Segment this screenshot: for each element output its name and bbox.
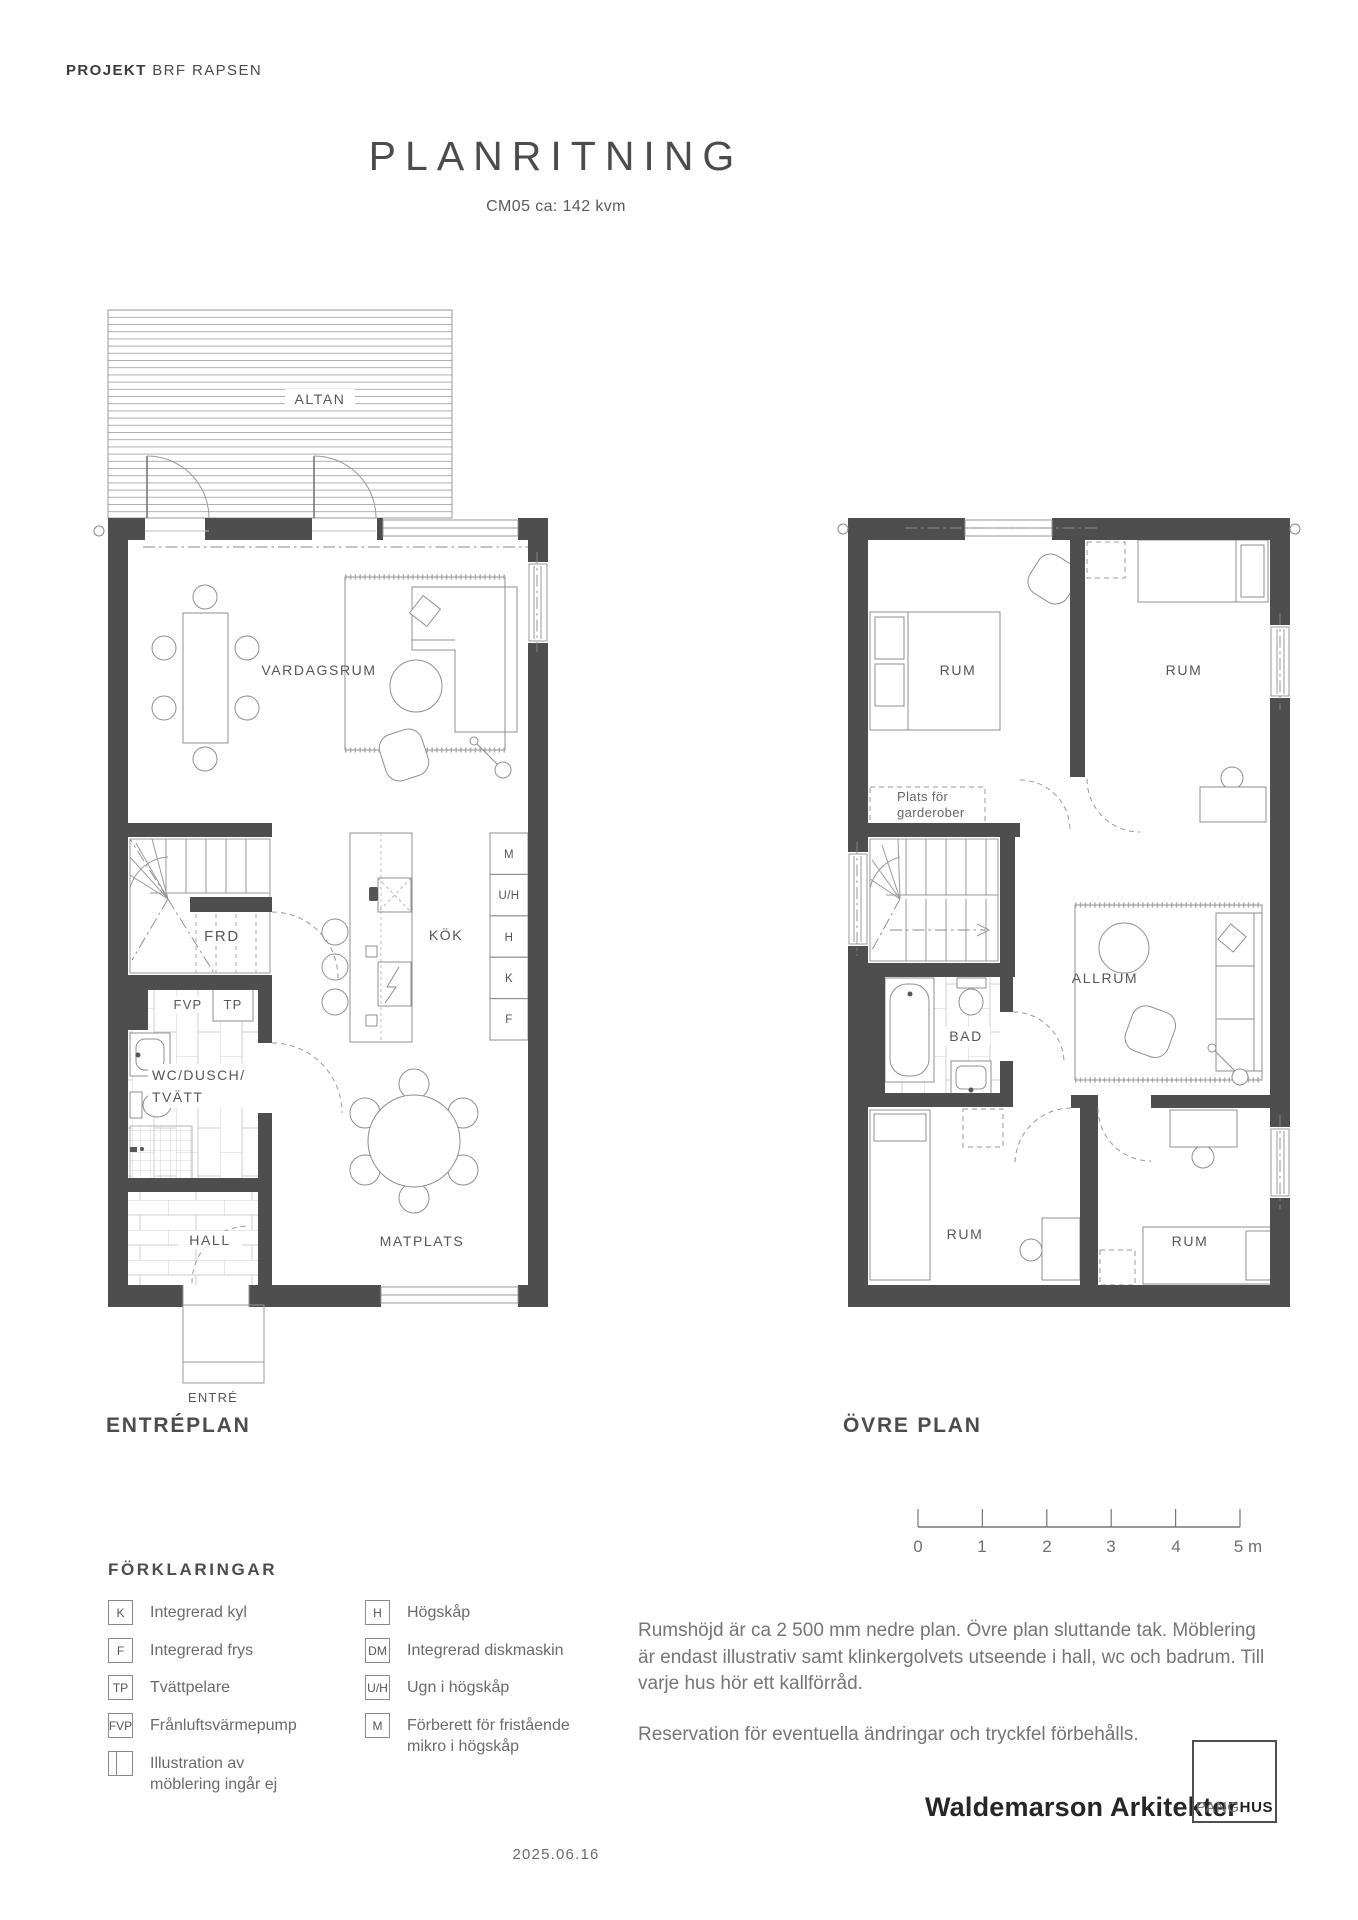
page-subtitle: CM05 ca: 142 kvm	[486, 198, 626, 216]
page-title: PLANRITNING	[369, 133, 744, 180]
legend-key-box: H	[365, 1600, 390, 1625]
cabinet-label-uh: U/H	[498, 890, 519, 902]
legend-key-box: TP	[108, 1675, 133, 1700]
staircase-upper	[870, 839, 998, 961]
entreplan-drawing: ALTAN VARDAGSRUM FRD FVP TP WC/DUSCH/ TV…	[60, 280, 580, 1420]
room-label-entre: ENTRÉ	[188, 1390, 238, 1405]
legend-label: Högskåp	[407, 1600, 470, 1623]
legend-key-box: F	[108, 1638, 133, 1663]
armchair	[376, 725, 433, 784]
bar-stools	[322, 919, 348, 1015]
label-plats-line1: Plats för	[897, 789, 949, 804]
legend-key-box: DM	[365, 1638, 390, 1663]
cabinet-label-k: K	[505, 973, 513, 985]
corner-marker-right	[1290, 524, 1300, 534]
floorplan-document: PROJEKT BRF RAPSEN PLANRITNING CM05 ca: …	[0, 0, 1358, 1920]
room-label-vardagsrum: VARDAGSRUM	[261, 662, 376, 678]
legend-label: Integrerad diskmaskin	[407, 1638, 564, 1661]
faucet-icon	[369, 887, 378, 901]
cabinet-label-m: M	[504, 849, 514, 861]
document-date: 2025.06.16	[512, 1846, 599, 1863]
legend-item-illustration: Illustration av möblering ingår ej	[108, 1751, 315, 1795]
bed-room-bottomleft	[870, 1110, 930, 1280]
room-label-tp: TP	[223, 997, 242, 1012]
desk-room-topright	[1200, 767, 1266, 822]
room-label-wc-line1: WC/DUSCH/	[152, 1067, 245, 1083]
legend-key-box: U/H	[365, 1675, 390, 1700]
scale-label-3: 3	[1106, 1537, 1115, 1556]
room-label-rum-topright: RUM	[1166, 662, 1203, 678]
project-header: PROJEKT BRF RAPSEN	[66, 62, 262, 79]
legend-key-box: K	[108, 1600, 133, 1625]
legend-item-frys: F Integrerad frys	[108, 1638, 253, 1663]
plan-title-entreplan: ENTRÉPLAN	[106, 1414, 251, 1438]
legend-item-diskmaskin: DM Integrerad diskmaskin	[365, 1638, 564, 1663]
legend-label: Integrerad kyl	[150, 1600, 247, 1623]
legend-item-kyl: K Integrerad kyl	[108, 1600, 247, 1625]
room-label-bad: BAD	[949, 1028, 983, 1044]
legend-item-mikro: M Förberett för fristående mikro i högsk…	[365, 1713, 607, 1757]
ovreplan-drawing: RUM RUM Plats för garderober ALLRUM BAD …	[820, 480, 1320, 1340]
entry-porch	[183, 1305, 264, 1383]
legend-label: Tvättpelare	[150, 1675, 230, 1698]
cabinet-label-h: H	[505, 932, 514, 944]
corner-marker-left	[838, 524, 848, 534]
room-label-kok: KÖK	[429, 926, 463, 943]
shower-area	[130, 1126, 192, 1180]
altan-deck	[108, 310, 452, 518]
project-name: BRF RAPSEN	[152, 62, 262, 79]
project-label: PROJEKT	[66, 62, 147, 79]
scale-label-0: 0	[913, 1537, 922, 1556]
bathtub	[885, 978, 934, 1082]
legend-label: Illustration av möblering ingår ej	[150, 1751, 315, 1795]
legend-item-franluft: FVP Frånluftsvärmepump	[108, 1713, 297, 1738]
sink-upper	[951, 1061, 991, 1095]
room-label-rum-bottomleft: RUM	[947, 1226, 984, 1242]
legend-key-box-illustration	[108, 1751, 133, 1776]
plan-title-ovreplan: ÖVRE PLAN	[843, 1414, 982, 1438]
room-label-matplats: MATPLATS	[380, 1233, 465, 1249]
legend-item-tvattpelare: TP Tvättpelare	[108, 1675, 230, 1700]
scale-bar: 0 1 2 3 4 5 m	[900, 1495, 1280, 1565]
dining-table-vardagsrum	[152, 585, 259, 771]
room-label-frd: FRD	[204, 928, 240, 945]
bed-room-topright	[1138, 540, 1268, 602]
legend-heading: FÖRKLARINGAR	[108, 1560, 277, 1580]
note-reservation: Reservation för eventuella ändringar och…	[638, 1722, 1268, 1749]
kitchen-island	[350, 833, 412, 1042]
legend-label: Frånluftsvärmepump	[150, 1713, 297, 1736]
allrum-armchair	[1121, 1002, 1179, 1062]
legend-key-box: M	[365, 1713, 390, 1738]
matplats-table	[350, 1069, 478, 1213]
label-plats-line2: garderober	[897, 805, 965, 820]
room-label-hall: HALL	[189, 1232, 230, 1248]
room-label-altan: ALTAN	[294, 391, 345, 407]
logo-text-pang: PANG	[1196, 1799, 1240, 1816]
bed-room-topleft	[870, 612, 1000, 730]
legend-label: Förberett för fristående mikro i högskåp	[407, 1713, 607, 1757]
desk-room-bottomleft	[1020, 1218, 1080, 1280]
allrum-sofa	[1216, 913, 1262, 1071]
allrum-table	[1099, 923, 1149, 973]
legend-key-box: FVP	[108, 1713, 133, 1738]
sink-faucet-icon	[136, 1053, 141, 1058]
room-label-rum-topleft: RUM	[940, 662, 977, 678]
legend-label: Integrerad frys	[150, 1638, 253, 1661]
panghus-logo: PANGHUS	[1192, 1740, 1277, 1823]
legend-item-hogskap: H Högskåp	[365, 1600, 470, 1625]
scale-label-2: 2	[1042, 1537, 1051, 1556]
desk-room-bottomright	[1170, 1110, 1237, 1168]
cabinet-label-f: F	[505, 1014, 512, 1026]
corner-marker	[94, 526, 104, 536]
coffee-table	[390, 660, 442, 712]
scale-label-5m: 5 m	[1234, 1537, 1262, 1556]
room-label-rum-bottomright: RUM	[1172, 1233, 1209, 1249]
note-room-height: Rumshöjd är ca 2 500 mm nedre plan. Övre…	[638, 1618, 1268, 1698]
legend-item-ugn: U/H Ugn i högskåp	[365, 1675, 509, 1700]
room-label-fvp: FVP	[174, 997, 203, 1012]
scale-label-4: 4	[1171, 1537, 1180, 1556]
logo-text-hus: HUS	[1240, 1799, 1273, 1816]
room-label-allrum: ALLRUM	[1072, 970, 1138, 986]
scale-label-1: 1	[977, 1537, 986, 1556]
shower-faucet-icon	[130, 1147, 137, 1152]
legend-label: Ugn i högskåp	[407, 1675, 509, 1698]
room-label-wc-line2: TVÄTT	[152, 1089, 203, 1105]
